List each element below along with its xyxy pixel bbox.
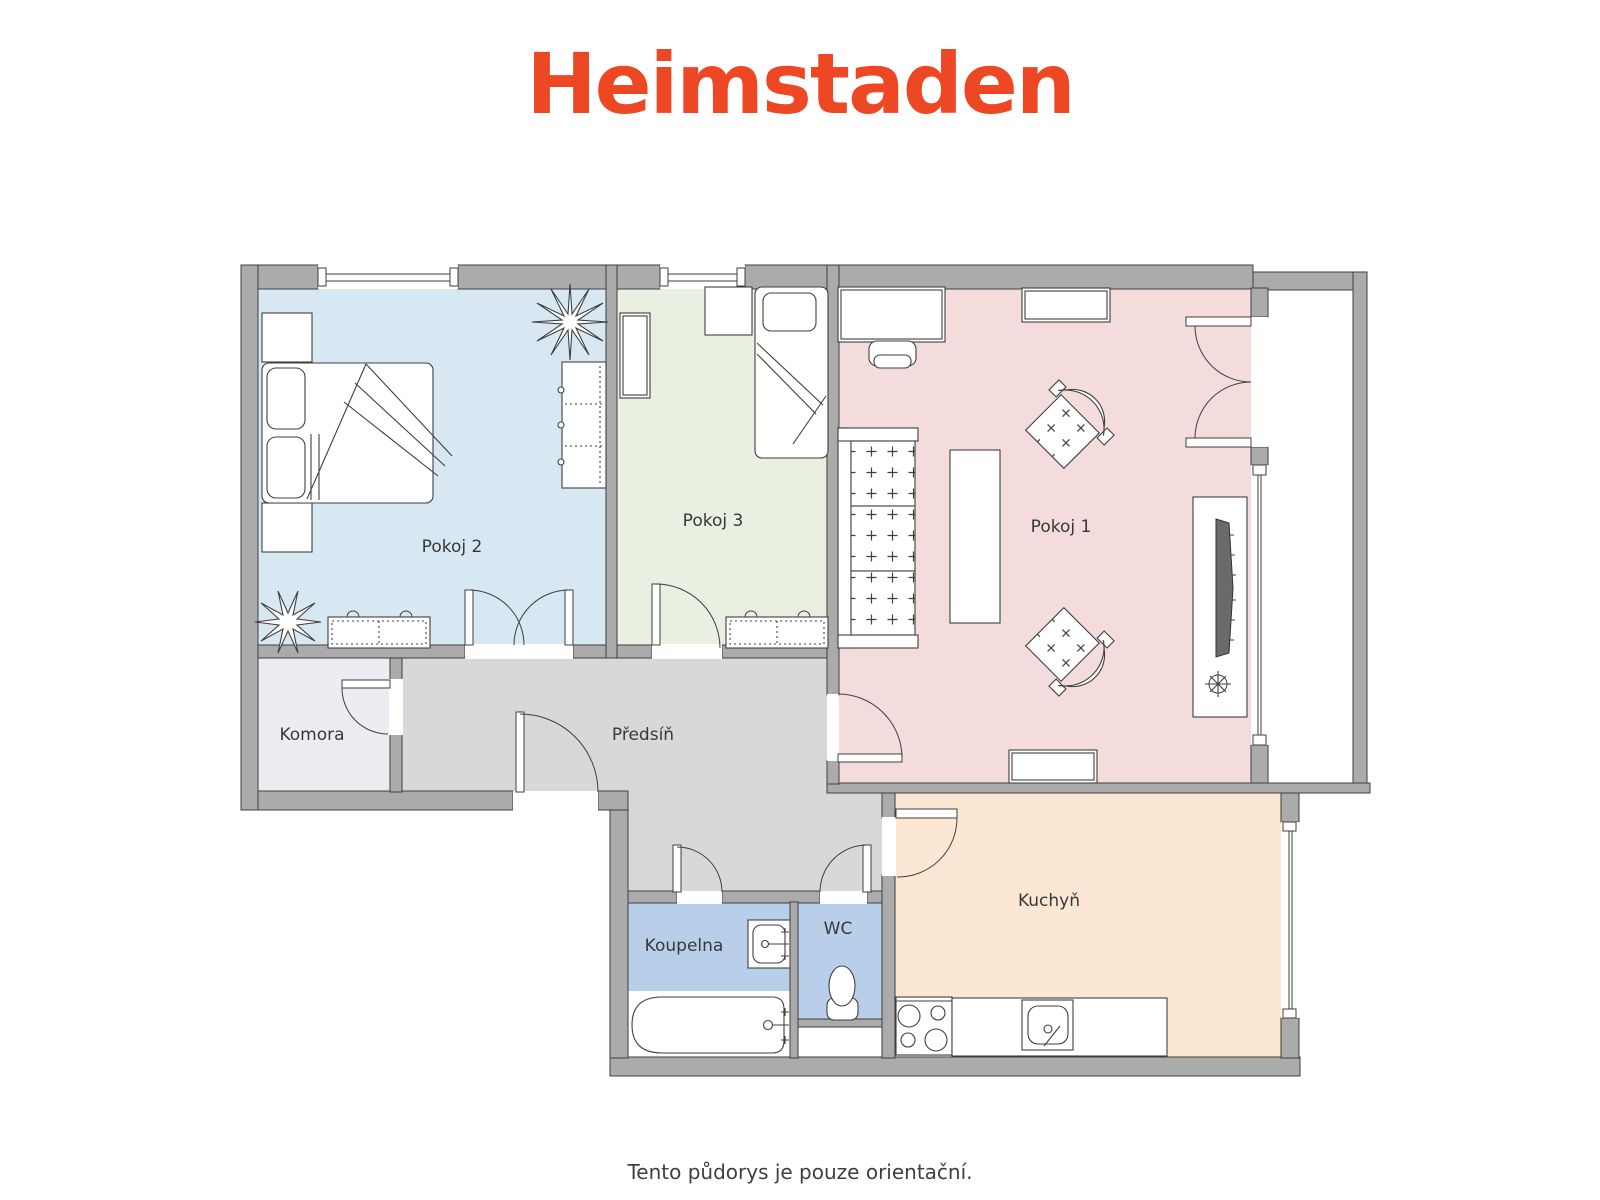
- coffee-table: [950, 450, 1000, 623]
- room-label-wc: WC: [824, 919, 853, 939]
- wardrobe: [620, 313, 650, 398]
- room-label-predsin: Předsíň: [612, 725, 674, 745]
- stove: [896, 997, 952, 1055]
- room-area-predsin-lower: [620, 788, 889, 897]
- desk-chair: [869, 341, 916, 368]
- window-pokoj1-balcony: [1251, 465, 1268, 745]
- tv-icon: [1216, 519, 1233, 657]
- wardrobe: [558, 362, 606, 488]
- window-pokoj2: [318, 265, 458, 289]
- room-label-pokoj2: Pokoj 2: [422, 537, 483, 557]
- page: Heimstaden: [0, 0, 1600, 1200]
- dresser: [726, 611, 828, 648]
- desk: [838, 287, 945, 342]
- washbasin: [748, 920, 790, 968]
- sofa: [838, 428, 918, 648]
- disclaimer-caption: Tento půdorys je pouze orientační.: [0, 1160, 1600, 1184]
- room-label-pokoj3: Pokoj 3: [683, 511, 744, 531]
- kitchen-sink: [1022, 1000, 1073, 1050]
- desk: [705, 287, 752, 335]
- room-label-pokoj1: Pokoj 1: [1031, 517, 1092, 537]
- floor-plan: Pokoj 2 Pokoj 3 Pokoj 1 Komora Předsíň K…: [0, 0, 1600, 1200]
- bathtub: [632, 997, 789, 1053]
- room-label-komora: Komora: [279, 725, 344, 745]
- window-pokoj3: [660, 265, 745, 289]
- sideboard: [1022, 288, 1110, 322]
- room-label-kuchyn: Kuchyň: [1018, 891, 1080, 911]
- window-kuchyn: [1281, 822, 1299, 1018]
- furniture-kuchyn: [896, 997, 1167, 1056]
- nightstand-top: [262, 313, 312, 362]
- tv-stand: [1193, 497, 1247, 717]
- bench: [1009, 750, 1097, 783]
- nightstand-bottom: [262, 503, 312, 552]
- double-bed: [262, 363, 452, 503]
- dresser: [328, 611, 430, 648]
- single-bed: [755, 287, 828, 458]
- room-label-koupelna: Koupelna: [645, 936, 724, 956]
